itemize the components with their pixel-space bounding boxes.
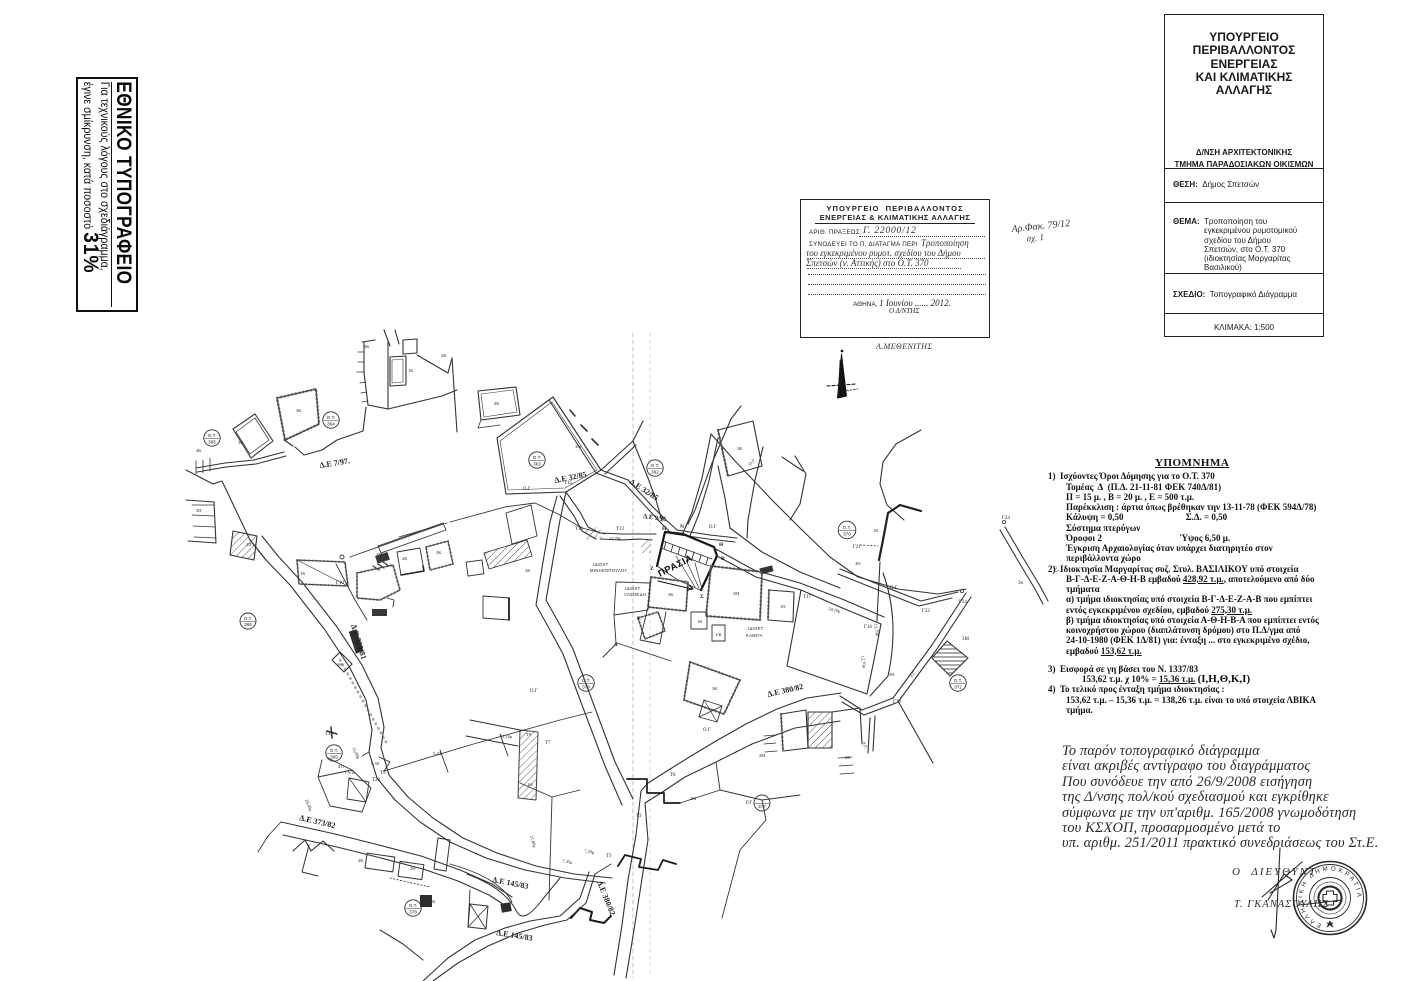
svg-text:ΙΔΙΟΚΤ.: ΙΔΙΟΚΤ. (748, 626, 765, 631)
svg-text:377: 377 (758, 804, 766, 809)
svg-text:Τ17: Τ17 (803, 595, 812, 600)
svg-text:379: 379 (582, 685, 590, 690)
svg-text:Ο.Γ: Ο.Γ (748, 459, 757, 468)
svg-text:Ν: Ν (680, 524, 684, 530)
svg-text:3Μ: 3Μ (376, 552, 382, 557)
svg-text:Ε: Ε (637, 616, 641, 622)
svg-text:2Θ: 2Θ (410, 866, 416, 871)
svg-text:Γ16: Γ16 (864, 625, 872, 630)
svg-text:Β: Β (721, 556, 725, 562)
svg-text:369: 369 (330, 755, 338, 760)
svg-text:Γ22: Γ22 (922, 609, 930, 614)
svg-text:3Μ: 3Μ (962, 637, 970, 642)
svg-text:Γ23: Γ23 (893, 700, 901, 705)
svg-text:366: 366 (244, 622, 252, 627)
svg-text:ΚΑΜΙΓΑ: ΚΑΜΙΓΑ (746, 633, 763, 638)
svg-text:3Κ: 3Κ (712, 686, 718, 691)
svg-text:Τ12: Τ12 (575, 527, 584, 532)
svg-text:Τ19: Τ19 (325, 732, 334, 737)
svg-text:6,38: 6,38 (371, 761, 380, 767)
svg-text:Ο.Τ.: Ο.Τ. (244, 616, 252, 621)
svg-text:Ο.Γ: Ο.Γ (890, 586, 898, 591)
svg-text:ΙΔΙΟΚΤ.: ΙΔΙΟΚΤ. (625, 586, 642, 591)
svg-text:365: 365 (208, 440, 216, 445)
svg-text:Ο.Γ: Ο.Γ (523, 487, 531, 492)
svg-text:21,80μ: 21,80μ (528, 835, 538, 849)
svg-text:Ο.Γ: Ο.Γ (709, 525, 717, 530)
svg-text:Δ.Ε 380/82: Δ.Ε 380/82 (595, 879, 617, 916)
svg-text:4Κ: 4Κ (364, 344, 370, 349)
svg-text:372: 372 (954, 685, 962, 690)
svg-text:3Π: 3Π (246, 542, 252, 547)
svg-text:Τ8: Τ8 (670, 773, 676, 778)
svg-text:Τ20: Τ20 (372, 778, 381, 783)
svg-text:2Μ: 2Μ (690, 796, 696, 801)
svg-text:7,50μ: 7,50μ (584, 848, 596, 856)
svg-text:ο.Γ.: ο.Γ. (861, 741, 867, 749)
svg-text:2Θ: 2Θ (337, 662, 343, 667)
svg-text:24,10μ: 24,10μ (828, 606, 842, 615)
svg-text:Ο.Τ.: Ο.Τ. (843, 525, 851, 530)
svg-text:ο.Γ.: ο.Γ. (910, 671, 918, 680)
svg-text:3Κ: 3Κ (668, 592, 674, 597)
svg-text:Ρ.Γ: Ρ.Γ (746, 801, 752, 806)
svg-text:1/Κ: 1/Κ (715, 632, 723, 637)
svg-text:Δ.Ε 7/97.: Δ.Ε 7/97. (319, 456, 351, 470)
svg-text:3Θ: 3Θ (889, 672, 895, 677)
svg-text:Ο.Γ.: Ο.Γ. (1051, 566, 1059, 575)
svg-text:3Π: 3Π (338, 764, 344, 769)
svg-text:378: 378 (409, 910, 417, 915)
svg-text:12,70μ: 12,70μ (872, 623, 881, 637)
svg-text:3Μ: 3Μ (575, 444, 581, 449)
svg-text:Ο.Τ.: Ο.Τ. (330, 748, 338, 753)
svg-text:1Κ: 1Κ (873, 528, 879, 533)
svg-text:ΙΔΙΟΚΤ.: ΙΔΙΟΚΤ. (593, 562, 610, 567)
svg-text:2Κ: 2Κ (402, 556, 408, 561)
svg-text:Ο.Τ.: Ο.Τ. (533, 455, 541, 460)
svg-text:Ο.Γ: Ο.Γ (703, 728, 711, 733)
svg-text:Τ13: Τ13 (616, 527, 625, 532)
svg-text:2Κ: 2Κ (845, 755, 851, 760)
svg-text:364: 364 (327, 422, 335, 427)
svg-text:Ο.Τ.: Ο.Τ. (582, 678, 590, 683)
svg-text:362: 362 (651, 470, 659, 475)
svg-text:Ο.Γ: Ο.Γ (530, 689, 538, 694)
svg-text:3Μ: 3Μ (733, 591, 739, 596)
svg-text:Γ24: Γ24 (1002, 516, 1010, 521)
svg-text:ΞΑΣΙΜΙΔΗ: ΞΑΣΙΜΙΔΗ (624, 592, 646, 597)
svg-text:363: 363 (533, 462, 541, 467)
svg-text:Δ.Ε 320/81: Δ.Ε 320/81 (349, 623, 368, 661)
svg-text:Δ: Δ (614, 642, 618, 648)
svg-text:ΓΛ/3: ΓΛ/3 (345, 770, 355, 775)
svg-text:3Κ: 3Κ (238, 440, 244, 445)
svg-text:2Κ: 2Κ (441, 353, 447, 358)
svg-text:Τ15: Τ15 (564, 481, 573, 486)
svg-text:Ο.Τ.: Ο.Τ. (208, 433, 216, 438)
svg-text:28,60μ: 28,60μ (303, 799, 313, 813)
svg-text:Δ.Ε 145/83: Δ.Ε 145/83 (492, 875, 530, 891)
svg-text:Τ3: Τ3 (636, 814, 642, 819)
svg-text:370: 370 (843, 532, 851, 537)
svg-text:4Κ: 4Κ (196, 448, 202, 453)
svg-text:Θ: Θ (719, 542, 724, 548)
svg-text:2Κ: 2Κ (358, 858, 364, 863)
svg-text:7,35μ: 7,35μ (562, 858, 574, 866)
svg-text:6Κ: 6Κ (430, 899, 436, 904)
svg-text:12,70μ: 12,70μ (859, 655, 867, 669)
svg-text:Δ.Ε 380/82: Δ.Ε 380/82 (766, 682, 804, 699)
svg-text:1Κ: 1Κ (408, 368, 414, 373)
svg-text:3Κ: 3Κ (296, 408, 302, 413)
svg-text:1Κ: 1Κ (697, 619, 703, 624)
svg-text:Δ.Ε 9/96: Δ.Ε 9/96 (643, 513, 668, 523)
svg-text:3Κ: 3Κ (737, 446, 743, 451)
svg-text:3Π: 3Π (196, 508, 202, 513)
svg-text:3κ: 3κ (1018, 581, 1024, 586)
svg-text:Τ9: Τ9 (380, 771, 386, 776)
svg-text:Η: Η (662, 526, 667, 532)
svg-text:Γ10: Γ10 (336, 581, 344, 586)
svg-text:1Θ: 1Θ (780, 604, 786, 609)
svg-text:Ο.Τ.: Ο.Τ. (327, 415, 335, 420)
svg-text:3Κ: 3Κ (436, 550, 442, 555)
svg-text:Ο.Τ.: Ο.Τ. (409, 903, 417, 908)
svg-text:ΜΙΝΗΚΟΠΟΥΛΟΥ: ΜΙΝΗΚΟΠΟΥΛΟΥ (590, 568, 627, 573)
svg-text:Τ7: Τ7 (545, 741, 551, 746)
svg-text:ΕΛΛΗΝΙΚΗ ΔΗΜΟΚΡΑΤΙΑ: ΕΛΛΗΝΙΚΗ ΔΗΜΟΚΡΑΤΙΑ (1297, 865, 1362, 929)
svg-text:Ο.Τ.: Ο.Τ. (954, 678, 962, 683)
svg-text:Ζ: Ζ (650, 566, 654, 572)
svg-text:Ο.Τ.: Ο.Τ. (651, 463, 659, 468)
svg-text:Γ21: Γ21 (853, 545, 861, 550)
svg-text:Σ: Σ (700, 594, 704, 600)
svg-text:Γ24: Γ24 (959, 600, 967, 605)
svg-text:1Κ: 1Κ (300, 571, 306, 576)
svg-text:3Θ: 3Θ (855, 561, 861, 566)
svg-text:4Κ: 4Κ (494, 401, 500, 406)
svg-text:2Κ: 2Κ (525, 568, 531, 573)
svg-text:15,00μ: 15,00μ (350, 746, 361, 760)
svg-text:Τ3: Τ3 (606, 854, 612, 859)
svg-text:2Μ: 2Μ (759, 753, 765, 758)
svg-text:12,70μ.: 12,70μ. (609, 536, 623, 542)
